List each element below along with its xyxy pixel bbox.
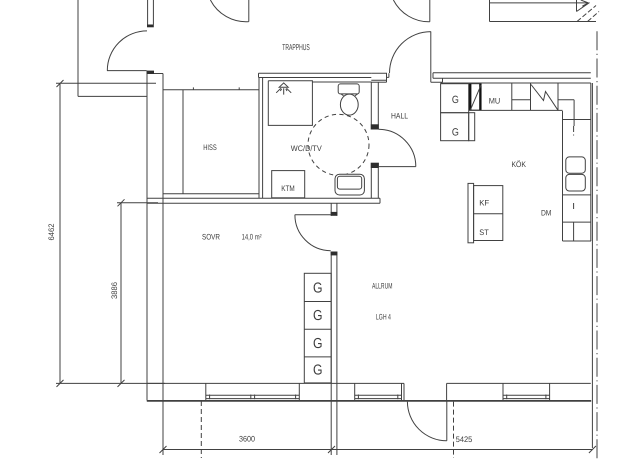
svg-text:6462: 6462 [47,223,56,241]
svg-text:KF: KF [479,198,489,207]
svg-text:DM: DM [541,209,552,218]
svg-text:3886: 3886 [110,281,119,299]
svg-text:G: G [313,363,323,379]
svg-text:HISS: HISS [203,143,217,152]
svg-text:G: G [313,336,323,352]
svg-text:ST: ST [479,228,489,237]
svg-text:LGH 4: LGH 4 [376,313,391,322]
svg-text:G: G [313,280,323,296]
svg-text:SOVR: SOVR [202,233,220,242]
svg-text:TRAPPHUS: TRAPPHUS [282,42,310,52]
svg-text:G: G [313,308,323,324]
svg-text:3600: 3600 [239,435,255,444]
svg-text:ALLRUM: ALLRUM [372,281,393,290]
svg-text:MU: MU [489,96,501,105]
svg-text:5425: 5425 [456,435,473,444]
svg-text:14,0 m²: 14,0 m² [242,233,262,242]
svg-text:KTM: KTM [281,184,295,193]
svg-text:WC/D/TV: WC/D/TV [291,144,323,153]
svg-text:KÖK: KÖK [511,160,526,169]
svg-text:G: G [452,127,459,139]
svg-text:HALL: HALL [391,111,408,120]
svg-text:G: G [452,94,459,106]
